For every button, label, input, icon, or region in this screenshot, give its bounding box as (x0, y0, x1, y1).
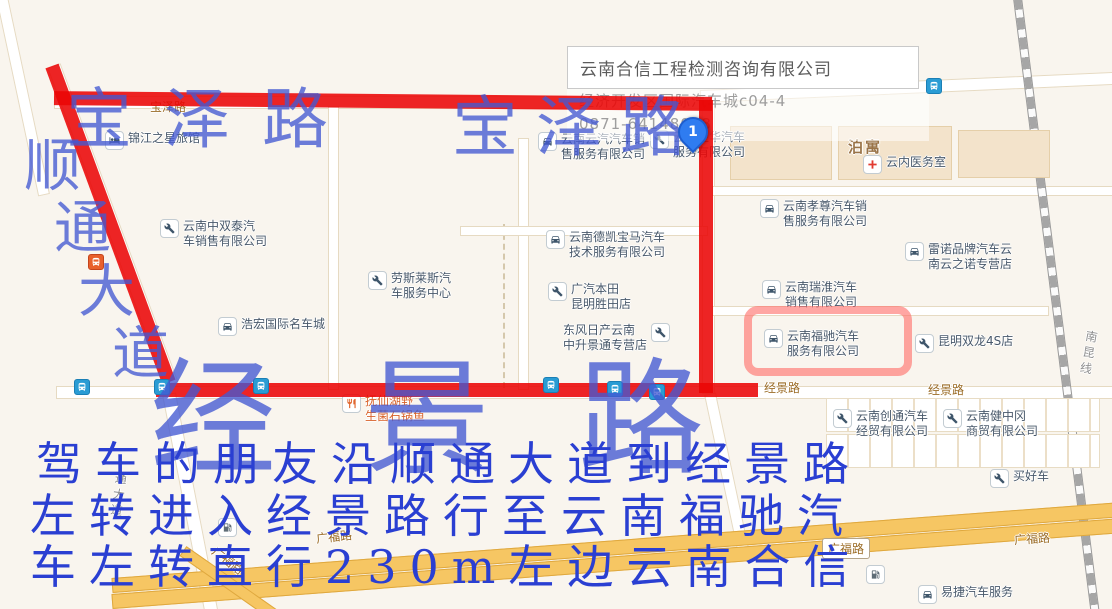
poi-jianzhonggang[interactable]: 云南健中冈商贸有限公司 (943, 409, 1038, 439)
wrench-icon (160, 219, 179, 238)
road-east-horizontal-1 (712, 186, 1112, 196)
poi-yunnei-clinic[interactable]: 云内医务室 (863, 155, 946, 174)
wrench-icon (833, 409, 852, 428)
road-label-nankun-line: 南昆线 (1076, 329, 1101, 379)
wrench-icon (915, 334, 934, 353)
poi-label: 广汽本田昆明胜田店 (571, 282, 631, 312)
car-icon (918, 585, 937, 604)
poi-label: 云南健中冈商贸有限公司 (966, 409, 1038, 439)
road-label-jingjing-2: 经景路 (928, 381, 964, 398)
wrench-icon (368, 271, 387, 290)
poi-label: 云南德凯宝马汽车技术服务有限公司 (569, 230, 665, 260)
poi-label: 易捷汽车服务 (941, 585, 1013, 600)
car-icon (546, 230, 565, 249)
poi-rolls-royce[interactable]: 劳斯莱斯汽车服务中心 (368, 271, 451, 301)
car-icon (762, 280, 781, 299)
poi-label: 云南孝尊汽车销售服务有限公司 (783, 199, 867, 229)
poi-label: 买好车 (1013, 469, 1049, 484)
poi-shuanglong-4s[interactable]: 昆明双龙4S店 (915, 334, 1013, 353)
wrench-icon (990, 469, 1009, 488)
poi-label: 昆明双龙4S店 (938, 334, 1013, 349)
poi-zhongshuangtai[interactable]: 云南中双泰汽车销售有限公司 (160, 219, 267, 249)
overlay-shuntong-char: 道 (112, 308, 169, 390)
poi-xiaozun-auto[interactable]: 云南孝尊汽车销售服务有限公司 (760, 199, 867, 229)
poi-label: 劳斯莱斯汽车服务中心 (391, 271, 451, 301)
poi-maihaoche[interactable]: 买好车 (990, 469, 1049, 488)
poi-label: 云南创通汽车经贸有限公司 (856, 409, 928, 439)
poi-label: 云南中双泰汽车销售有限公司 (183, 219, 267, 249)
overlay-baoze-left: 宝泽路 (66, 66, 360, 162)
fuel-station-icon[interactable] (866, 565, 885, 584)
bus-stop-icon[interactable] (74, 379, 90, 395)
poi-label: 雷诺品牌汽车云南云之诺专营店 (928, 242, 1012, 272)
map-canvas[interactable]: 宝泽路经景路经景路广福路广福路广福路广福路通大道南昆线泊寓 锦江之星旅馆云南中双… (0, 0, 1112, 609)
wrench-icon (548, 282, 567, 301)
poi-renault-store[interactable]: 雷诺品牌汽车云南云之诺专营店 (905, 242, 1012, 272)
poi-yijie-service[interactable]: 易捷汽车服务 (918, 585, 1013, 604)
poi-dekai-bmw[interactable]: 云南德凯宝马汽车技术服务有限公司 (546, 230, 665, 260)
wrench-icon (943, 409, 962, 428)
marker-number: 1 (680, 119, 706, 145)
cross-icon (863, 155, 882, 174)
building-block (958, 130, 1050, 178)
road-label-guangfu-right: 广福路 (1013, 529, 1050, 548)
directions-line-3: 车左转直行230m左边云南合信 (30, 531, 862, 597)
car-icon (760, 199, 779, 218)
parking-row (826, 434, 1100, 468)
car-icon (905, 242, 924, 261)
bus-stop-icon[interactable] (926, 78, 942, 94)
poi-gac-honda[interactable]: 广汽本田昆明胜田店 (548, 282, 631, 312)
poi-label: 云内医务室 (886, 155, 946, 170)
popup-title[interactable]: 云南合信工程检测咨询有限公司 (567, 46, 919, 89)
